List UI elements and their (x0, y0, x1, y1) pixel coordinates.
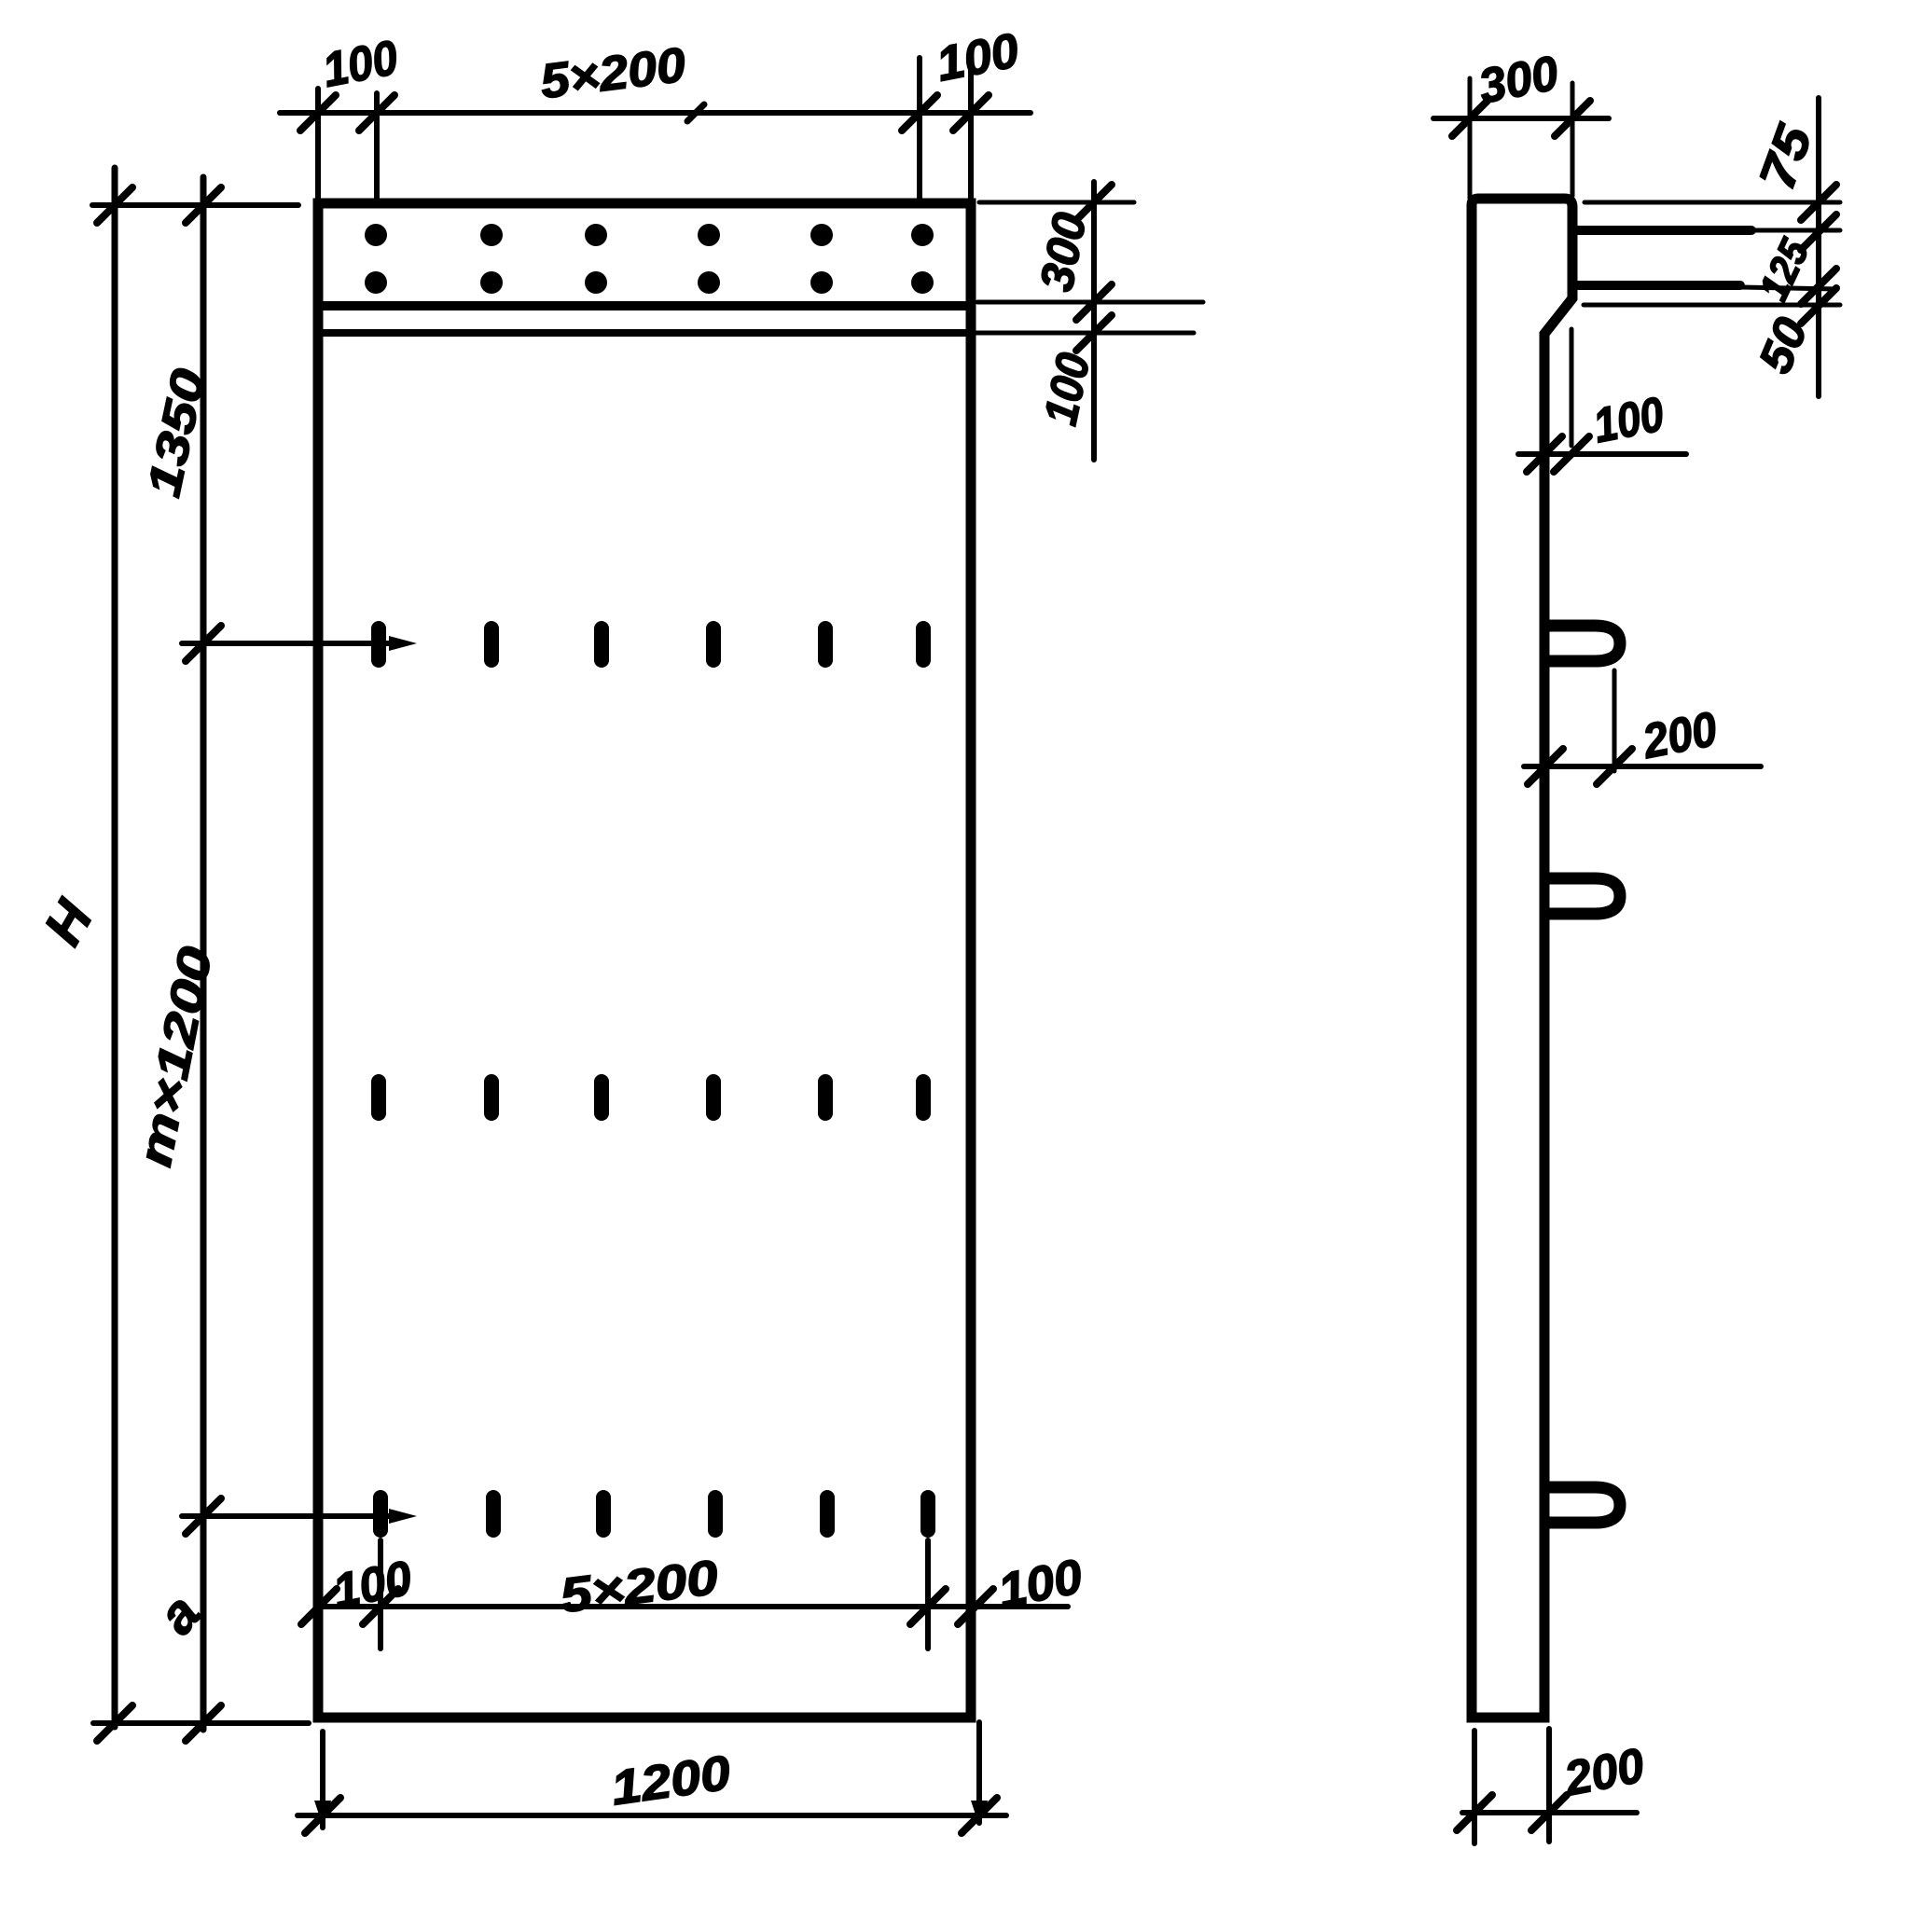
svg-text:100: 100 (1589, 387, 1668, 453)
svg-text:m×1200: m×1200 (129, 943, 222, 1171)
svg-text:5×200: 5×200 (557, 1551, 721, 1623)
svg-text:100: 100 (994, 1550, 1086, 1619)
svg-text:5×200: 5×200 (537, 38, 688, 110)
svg-text:1200: 1200 (608, 1746, 734, 1815)
svg-text:300: 300 (1030, 208, 1096, 295)
svg-text:100: 100 (319, 31, 403, 98)
svg-text:200: 200 (1638, 702, 1722, 769)
svg-text:75: 75 (1749, 117, 1823, 197)
svg-text:100: 100 (1034, 349, 1100, 430)
svg-text:100: 100 (933, 23, 1024, 92)
svg-text:200: 200 (1559, 1738, 1649, 1806)
svg-text:300: 300 (1474, 46, 1563, 114)
svg-text:H: H (33, 890, 105, 955)
